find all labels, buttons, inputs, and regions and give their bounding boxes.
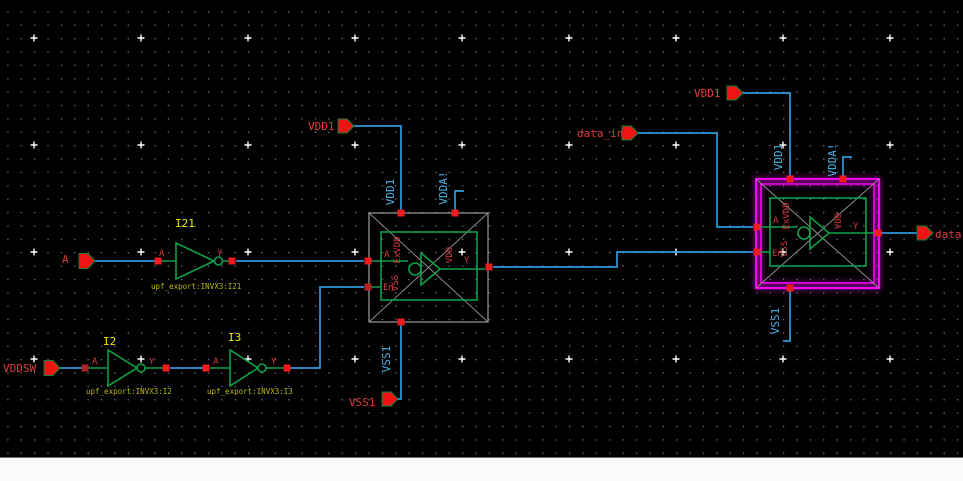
port-label-data-out: data: [935, 228, 962, 241]
pin-label-y: Y: [464, 256, 470, 266]
net-label-vdd1-right: VDD1: [772, 144, 785, 171]
instance-name: I21: [175, 217, 195, 230]
pin-square-a[interactable]: [754, 224, 761, 231]
net-label-vdd1-mid: VDD1: [384, 179, 397, 206]
port-label-vss1-mid: VSS1: [349, 396, 376, 409]
schematic-window: A VDDSW VDD1 data_in VDD1 VSS1: [0, 0, 963, 481]
pin-label-exvdd: ExVDD: [782, 202, 792, 229]
pin-label-a: A: [384, 250, 390, 260]
pin-label-a: A: [159, 249, 165, 259]
pin-label-a: A: [92, 357, 98, 367]
port-pin-vdd1-mid[interactable]: VDD1: [308, 119, 354, 133]
pin-label-y: Y: [271, 357, 277, 367]
pin-square-a[interactable]: [365, 258, 372, 265]
pin-label-vdd: VDD: [445, 247, 455, 263]
port-pin-vddsw[interactable]: VDDSW: [3, 361, 60, 376]
pin-square[interactable]: [229, 258, 236, 265]
pin-label-vss: VSS: [780, 241, 790, 257]
port-pin-data-out[interactable]: data: [917, 226, 962, 241]
instance-cell-label: upf_export:INVX3:I21: [151, 282, 241, 291]
pin-square-y[interactable]: [875, 230, 882, 237]
pin-square[interactable]: [82, 365, 89, 372]
pin-square-vss[interactable]: [787, 285, 794, 292]
port-label-vdd1-right: VDD1: [694, 87, 721, 100]
port-label-vddsw: VDDSW: [3, 362, 36, 375]
instance-name: I2: [103, 335, 116, 348]
instance-name: I3: [228, 331, 241, 344]
instance-cell-label: upf_export:INVX3:I3: [207, 387, 293, 396]
pin-square-en[interactable]: [365, 284, 372, 291]
pin-square-vss[interactable]: [398, 319, 405, 326]
port-pin-data-in[interactable]: data_in: [577, 126, 638, 140]
net-label-vdda-right: VDDA!: [826, 143, 839, 176]
net-label-vss1-mid: VSS1: [380, 346, 393, 373]
pin-square[interactable]: [163, 365, 170, 372]
pin-square-vdd[interactable]: [787, 176, 794, 183]
pin-label-y: Y: [217, 249, 223, 259]
pin-square[interactable]: [284, 365, 291, 372]
pin-square-exvdd[interactable]: [840, 176, 847, 183]
pin-label-vss: VSS: [391, 275, 401, 291]
pin-square-en[interactable]: [754, 249, 761, 256]
pin-label-a: A: [773, 216, 779, 226]
pin-square[interactable]: [203, 365, 210, 372]
net-label-vss1-right: VSS1: [769, 308, 782, 335]
pin-label-a: A: [213, 357, 219, 367]
pin-square-vdd[interactable]: [398, 210, 405, 217]
window-bottom-strip: [0, 457, 963, 481]
port-label-data-in: data_in: [577, 127, 623, 140]
port-label-vdd1-mid: VDD1: [308, 120, 335, 133]
net-label-vdda-mid: VDDA!: [437, 171, 450, 204]
pin-label-exvdd: ExVDD: [393, 236, 403, 263]
pin-label-vdd: VDD: [834, 213, 844, 229]
port-label-a: A: [62, 253, 69, 266]
pin-square-y[interactable]: [486, 264, 493, 271]
pin-label-y: Y: [853, 222, 859, 232]
port-pin-vdd1-right[interactable]: VDD1: [694, 86, 743, 100]
instance-cell-label: upf_export:INVX3:I2: [86, 387, 172, 396]
schematic-canvas[interactable]: A VDDSW VDD1 data_in VDD1 VSS1: [0, 0, 963, 457]
pin-square-exvdd[interactable]: [452, 210, 459, 217]
pin-label-y: Y: [149, 357, 155, 367]
